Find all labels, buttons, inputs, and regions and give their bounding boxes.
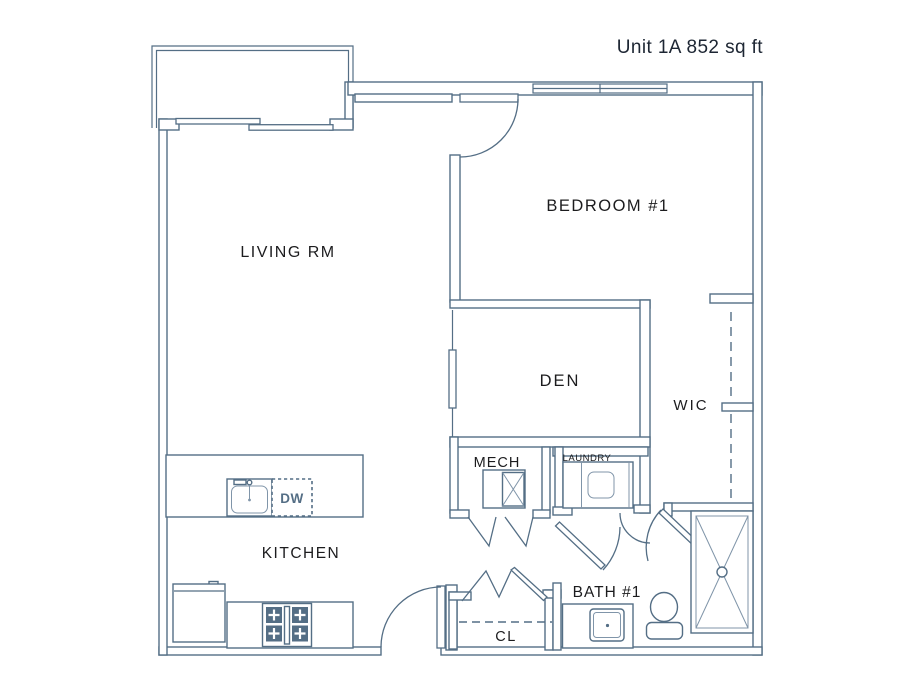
- shower: [691, 511, 753, 633]
- unit-title: Unit 1A 852 sq ft: [617, 37, 764, 58]
- cl-right-wall: [545, 590, 553, 650]
- range-stove: [263, 604, 312, 647]
- refrigerator: [173, 582, 225, 643]
- vanity-sink: [563, 604, 634, 648]
- bedroom-label: BEDROOM #1: [546, 197, 669, 215]
- range-center-divider: [285, 607, 290, 645]
- bath-label: BATH #1: [573, 584, 642, 601]
- mech-door-stub-right: [533, 510, 550, 518]
- cl-door-leaf: [511, 568, 547, 601]
- entry-door-leaf: [437, 586, 445, 648]
- cl-label: CL: [495, 629, 517, 645]
- mech-door-stub-left: [450, 510, 469, 518]
- toilet: [647, 593, 683, 640]
- mech-label: MECH: [474, 455, 521, 471]
- kitchen-sink: [227, 479, 272, 516]
- bath-door-arc: [603, 527, 620, 570]
- bath-fixtures: [563, 511, 754, 648]
- den-bottom-wall: [450, 437, 650, 447]
- den-slider-panel: [449, 350, 456, 408]
- den-top-wall: [450, 300, 650, 308]
- left-wall: [159, 119, 167, 655]
- bedroom-window: [531, 83, 669, 94]
- dishwasher: DW: [272, 479, 312, 516]
- laundry-door-arc: [620, 513, 650, 543]
- living-slider: [159, 119, 353, 131]
- laundry-label: LAUNDRY: [563, 453, 612, 464]
- kitchen-label: KITCHEN: [262, 545, 341, 562]
- wic-bottom-wall: [664, 503, 753, 511]
- mech-unit: [483, 470, 525, 508]
- faucet-icon: [234, 480, 246, 485]
- mech-left-wall: [450, 437, 458, 513]
- mech-double-doors: [468, 517, 533, 546]
- wic-top-stub: [710, 294, 753, 303]
- bedroom-door-leaf: [460, 94, 518, 102]
- laundry-corner-stub: [634, 505, 650, 513]
- floor-plan: DW: [0, 0, 900, 695]
- floor-plan-page: DW: [0, 0, 900, 695]
- den-label: DEN: [540, 372, 581, 390]
- shower-drain: [717, 567, 727, 577]
- wic-mid-stub: [722, 403, 753, 411]
- wic-door-arc: [646, 510, 661, 561]
- bath-left-wall: [553, 583, 561, 650]
- wic-label: WIC: [673, 397, 708, 414]
- mech-right-wall: [542, 447, 550, 513]
- right-wall: [753, 82, 762, 655]
- top-wall-furring: [355, 94, 452, 102]
- living-bedroom-wall: [450, 155, 460, 302]
- cl-closet: [459, 568, 552, 623]
- washer-dryer: [563, 462, 633, 508]
- den-right-wall: [640, 300, 650, 513]
- dishwasher-label: DW: [280, 491, 304, 506]
- slider-panel-a: [176, 119, 260, 125]
- bath-door-leaf: [556, 522, 606, 569]
- balcony: [152, 46, 353, 128]
- doors: [381, 94, 701, 648]
- slider-panel-b: [249, 125, 333, 131]
- bedroom-door-arc: [460, 99, 518, 157]
- living-room-label: LIVING RM: [240, 244, 335, 261]
- entry-door-arc: [381, 587, 441, 647]
